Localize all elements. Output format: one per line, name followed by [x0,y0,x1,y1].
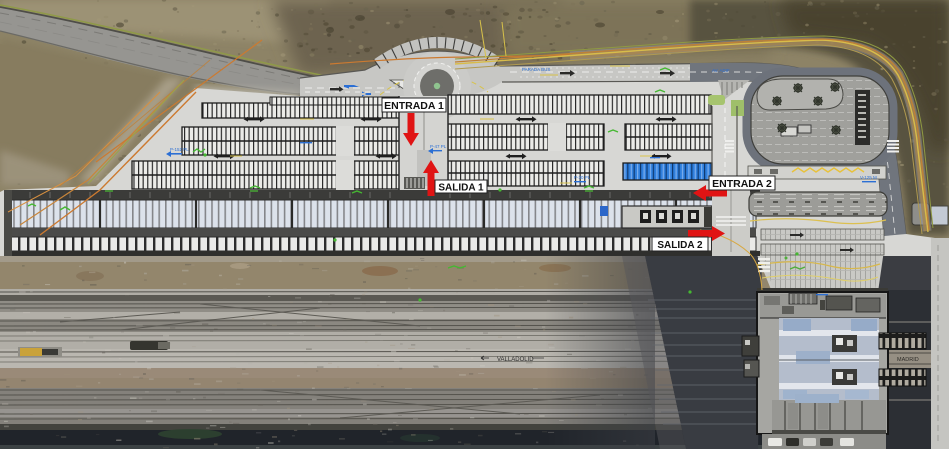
svg-text:MADRID: MADRID [897,357,919,363]
svg-text:SALIDA 1: SALIDA 1 [438,183,484,194]
svg-text:P-30 PL: P-30 PL [574,175,591,180]
svg-text:V-125 M: V-125 M [860,175,877,180]
svg-text:P-47 PL: P-47 PL [430,144,447,149]
svg-text:ENTRADA 2: ENTRADA 2 [712,178,772,190]
svg-text:ENTRADA 1: ENTRADA 1 [384,100,444,112]
svg-text:SALIDA 2: SALIDA 2 [657,240,703,251]
svg-text:VALLADOLID: VALLADOLID [497,357,534,363]
svg-text:AV. ADIF: AV. ADIF [712,68,730,73]
svg-text:PARADA BUS: PARADA BUS [522,67,550,72]
svg-text:P-152 PL: P-152 PL [170,147,189,152]
